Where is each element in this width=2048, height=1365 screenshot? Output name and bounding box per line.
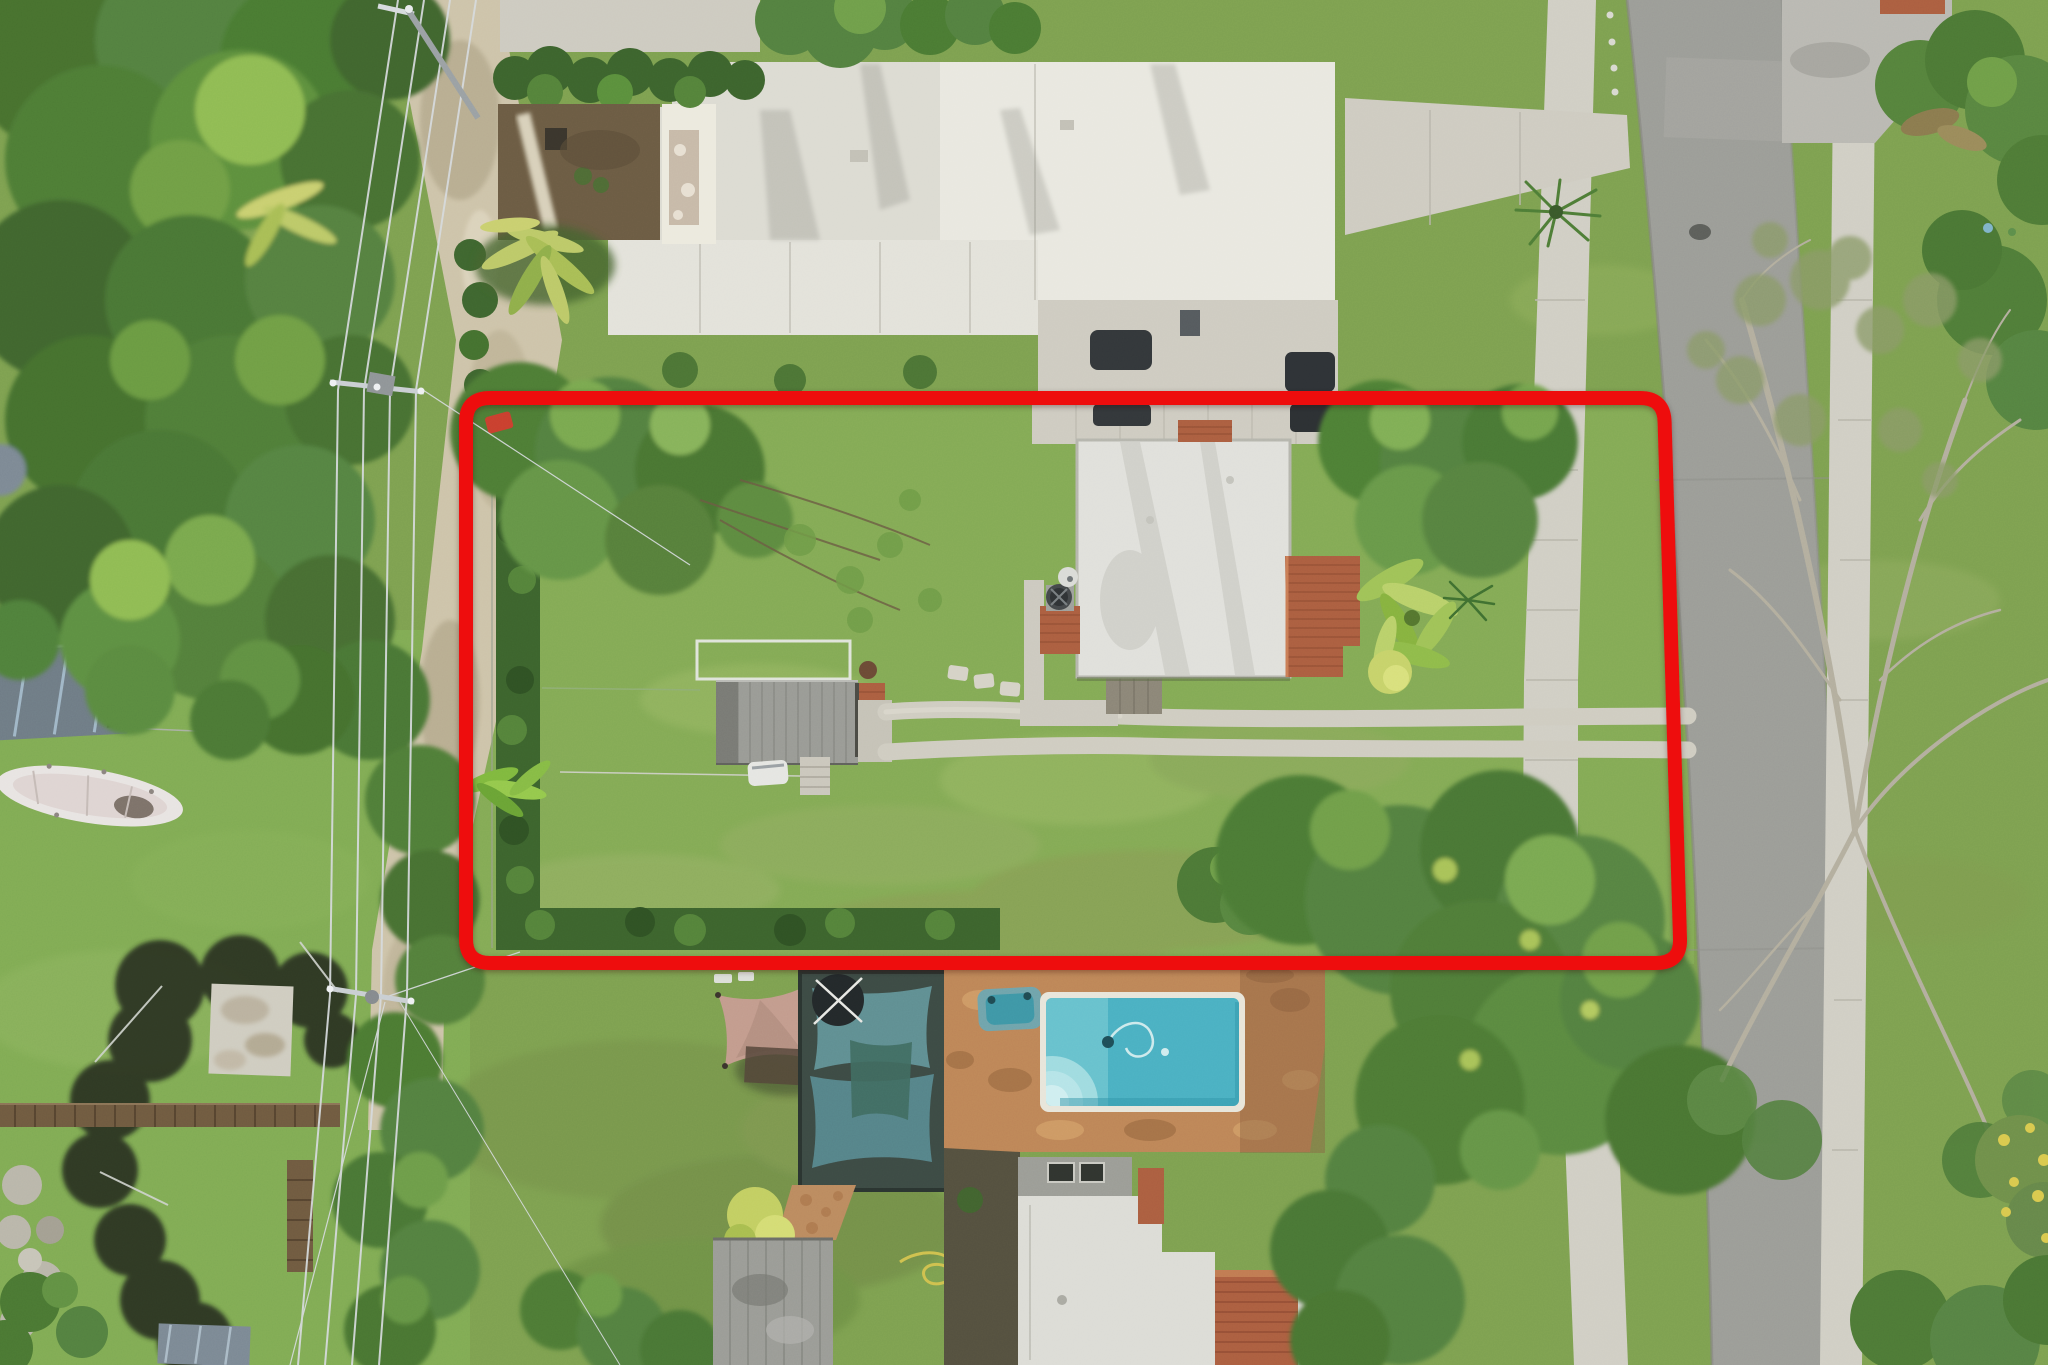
photo-grain xyxy=(0,0,2048,1365)
aerial-photo xyxy=(0,0,2048,1365)
aerial-photo-stage: Overhead aerial drone photo of a suburba… xyxy=(0,0,2048,1365)
